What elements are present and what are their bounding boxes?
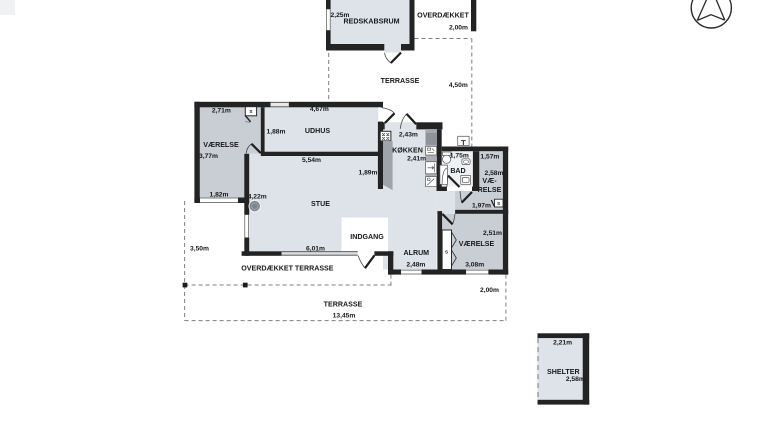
svg-text:1,82m: 1,82m [210, 191, 229, 198]
svg-text:S: S [445, 250, 448, 255]
svg-text:4,50m: 4,50m [449, 82, 468, 89]
svg-text:1,97m: 1,97m [472, 203, 491, 210]
svg-text:5,54m: 5,54m [302, 157, 321, 164]
svg-text:BAD: BAD [450, 167, 465, 175]
svg-text:2,48m: 2,48m [406, 262, 425, 269]
svg-text:OVERDÆKKET: OVERDÆKKET [417, 11, 469, 19]
svg-text:TERRASSE: TERRASSE [381, 77, 420, 85]
svg-text:INDGANG: INDGANG [350, 233, 384, 241]
svg-text:UDHUS: UDHUS [305, 127, 330, 135]
svg-text:RELSE: RELSE [478, 186, 502, 194]
svg-text:2,21m: 2,21m [553, 339, 572, 346]
svg-text:1,89m: 1,89m [359, 170, 378, 177]
svg-text:VÆRELSE: VÆRELSE [203, 141, 239, 149]
svg-text:REDSKABSRUM: REDSKABSRUM [344, 18, 400, 26]
svg-text:KØKKEN: KØKKEN [392, 146, 423, 154]
svg-text:3,08m: 3,08m [465, 262, 484, 269]
svg-text:4,22m: 4,22m [248, 194, 267, 201]
svg-text:2,43m: 2,43m [399, 132, 418, 139]
svg-text:OVERDÆKKET TERRASSE: OVERDÆKKET TERRASSE [241, 265, 333, 273]
svg-text:13,45m: 13,45m [333, 312, 356, 319]
svg-text:1,88m: 1,88m [267, 129, 286, 136]
svg-text:S: S [249, 109, 252, 114]
svg-text:ALRUM: ALRUM [403, 249, 429, 257]
svg-text:2,00m: 2,00m [449, 24, 468, 31]
svg-text:1,57m: 1,57m [480, 154, 499, 161]
svg-text:3,77m: 3,77m [199, 153, 218, 160]
svg-text:SHELTER: SHELTER [547, 368, 580, 376]
svg-text:3,50m: 3,50m [190, 246, 209, 253]
svg-text:1,75m: 1,75m [450, 152, 469, 159]
svg-text:VÆRELSE: VÆRELSE [459, 240, 495, 248]
svg-text:2,51m: 2,51m [483, 230, 502, 237]
svg-text:2,58m: 2,58m [566, 376, 585, 383]
svg-text:S: S [497, 201, 500, 206]
svg-text:4,67m: 4,67m [310, 106, 329, 113]
svg-text:VÆ-: VÆ- [482, 177, 497, 185]
svg-text:STUE: STUE [311, 200, 330, 208]
svg-text:6,01m: 6,01m [306, 246, 325, 253]
svg-text:2,58m: 2,58m [485, 170, 504, 177]
svg-text:2,71m: 2,71m [212, 108, 231, 115]
svg-text:2,00m: 2,00m [480, 287, 499, 294]
svg-text:TERRASSE: TERRASSE [324, 300, 363, 308]
svg-text:2,41m: 2,41m [407, 155, 426, 162]
